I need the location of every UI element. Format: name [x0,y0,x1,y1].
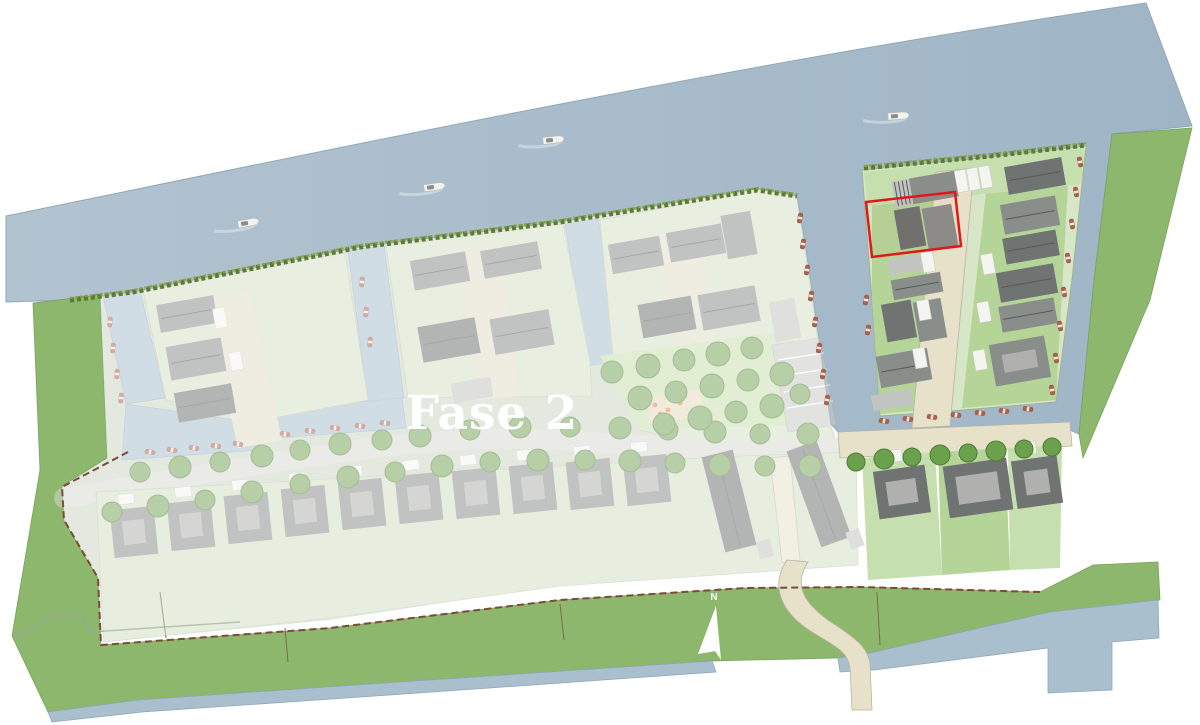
tree-icon [480,452,500,472]
tree-icon [251,445,273,467]
building [460,454,477,466]
site-plan-page: Fase 2 N [0,0,1200,725]
tree-icon [241,481,263,503]
site-plan-map: Fase 2 N [0,0,1200,725]
tree-icon [1043,438,1061,456]
building [452,467,501,519]
tree-icon [575,450,595,470]
tree-icon [169,456,191,478]
tree-icon [673,349,695,371]
highlighted-plot-outline[interactable] [866,192,961,257]
tree-icon [290,474,310,494]
tree-icon [527,449,549,471]
tree-icon [130,462,150,482]
tree-icon [1015,440,1033,458]
tree-icon [770,362,794,386]
tree-icon [799,455,821,477]
north-label: N [710,592,717,603]
tree-icon [709,454,731,476]
moored-boat-icon [118,393,123,403]
tree-icon [760,394,784,418]
tree-icon [619,450,641,472]
moored-boat-icon [110,343,115,353]
tree-icon [329,433,351,455]
tree-icon [700,374,724,398]
tree-icon [665,453,685,473]
phase-label: Fase 2 [406,386,579,441]
tree-icon [790,384,810,404]
tree-icon [959,444,977,462]
tree-icon [290,440,310,460]
tree-icon [337,466,359,488]
tree-icon [102,502,122,522]
moored-boat-icon [107,317,112,327]
tree-icon [688,406,712,430]
tree-icon [930,445,950,465]
tree-icon [636,354,660,378]
building [943,458,1014,518]
building [1011,455,1063,509]
tree-icon [195,490,215,510]
tree-icon [725,401,747,423]
moored-boat-icon [359,277,364,287]
tree-icon [431,455,453,477]
building [873,465,931,520]
tree-icon [847,453,865,471]
tree-icon [210,452,230,472]
tree-icon [601,361,623,383]
moored-boat-icon [367,337,372,347]
tree-icon [385,462,405,482]
tree-icon [755,456,775,476]
tree-icon [903,448,921,466]
building [175,486,192,498]
tree-icon [147,495,169,517]
tree-icon [741,337,763,359]
tree-icon [706,342,730,366]
tree-icon [737,369,759,391]
tree-icon [628,386,652,410]
tree-icon [609,417,631,439]
tree-icon [653,413,675,435]
moored-boat-icon [114,369,119,379]
building [118,493,135,505]
tree-icon [797,423,819,445]
moored-boat-icon [363,307,368,317]
tree-icon [986,441,1006,461]
tree-icon [874,449,894,469]
tree-icon [665,381,687,403]
tree-icon [750,424,770,444]
tree-icon [372,430,392,450]
